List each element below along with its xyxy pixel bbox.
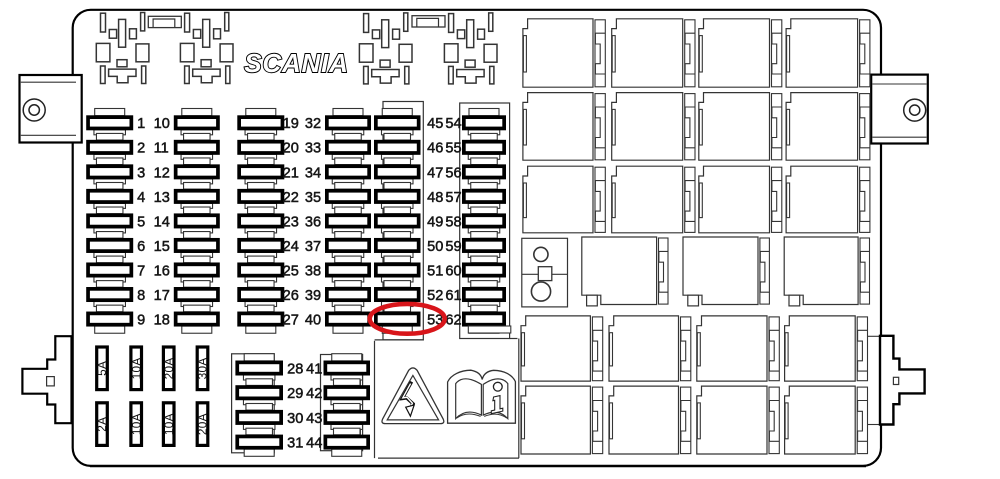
svg-text:27: 27: [283, 312, 299, 328]
svg-text:58: 58: [445, 214, 461, 230]
svg-text:51: 51: [427, 263, 443, 279]
svg-text:2A: 2A: [95, 417, 109, 432]
svg-text:17: 17: [154, 288, 170, 304]
svg-text:29: 29: [287, 386, 303, 402]
svg-text:21: 21: [283, 165, 299, 181]
svg-text:34: 34: [305, 165, 321, 181]
svg-text:3: 3: [137, 165, 145, 181]
svg-text:2: 2: [137, 141, 145, 157]
svg-text:24: 24: [283, 239, 299, 255]
svg-text:10: 10: [154, 116, 170, 132]
svg-text:54: 54: [445, 116, 461, 132]
svg-text:20: 20: [283, 141, 299, 157]
svg-text:30: 30: [287, 411, 303, 427]
svg-text:35: 35: [305, 190, 321, 206]
svg-text:20A: 20A: [196, 413, 210, 435]
svg-text:50: 50: [427, 239, 443, 255]
svg-text:42: 42: [306, 386, 322, 402]
svg-text:55: 55: [445, 141, 461, 157]
svg-text:13: 13: [154, 190, 170, 206]
svg-text:32: 32: [305, 116, 321, 132]
svg-text:14: 14: [154, 214, 170, 230]
svg-text:10A: 10A: [162, 413, 176, 435]
svg-text:44: 44: [306, 436, 322, 452]
svg-text:43: 43: [306, 411, 322, 427]
svg-text:10A: 10A: [129, 413, 143, 435]
svg-text:49: 49: [427, 214, 443, 230]
svg-text:8: 8: [137, 288, 145, 304]
svg-text:20A: 20A: [162, 357, 176, 379]
svg-text:31: 31: [287, 436, 303, 452]
svg-text:38: 38: [305, 263, 321, 279]
svg-text:30A: 30A: [196, 357, 210, 379]
svg-text:12: 12: [154, 165, 170, 181]
svg-text:57: 57: [445, 190, 461, 206]
svg-text:11: 11: [154, 141, 169, 157]
svg-text:SCANIA: SCANIA: [244, 48, 348, 78]
svg-text:56: 56: [445, 165, 461, 181]
svg-text:52: 52: [427, 288, 443, 304]
svg-text:4: 4: [137, 190, 145, 206]
svg-text:7: 7: [137, 263, 145, 279]
svg-text:19: 19: [283, 116, 299, 132]
svg-text:16: 16: [154, 263, 170, 279]
svg-text:33: 33: [305, 141, 321, 157]
svg-text:61: 61: [445, 288, 461, 304]
svg-text:15: 15: [154, 239, 170, 255]
svg-text:10A: 10A: [129, 357, 143, 379]
svg-text:26: 26: [283, 288, 299, 304]
svg-text:59: 59: [445, 239, 461, 255]
svg-text:5A: 5A: [95, 361, 109, 376]
svg-text:28: 28: [287, 361, 303, 377]
svg-text:22: 22: [283, 190, 299, 206]
svg-text:25: 25: [283, 263, 299, 279]
svg-text:18: 18: [154, 312, 170, 328]
svg-text:6: 6: [137, 239, 145, 255]
svg-text:36: 36: [305, 214, 321, 230]
svg-text:62: 62: [445, 312, 461, 328]
svg-text:5: 5: [137, 214, 145, 230]
svg-text:37: 37: [305, 239, 321, 255]
svg-text:41: 41: [306, 361, 322, 377]
svg-text:39: 39: [305, 288, 321, 304]
svg-text:1: 1: [137, 116, 145, 132]
svg-text:60: 60: [445, 263, 461, 279]
svg-text:48: 48: [427, 190, 443, 206]
svg-text:46: 46: [427, 141, 443, 157]
svg-text:47: 47: [427, 165, 443, 181]
svg-text:9: 9: [137, 312, 145, 328]
svg-text:40: 40: [305, 312, 321, 328]
svg-text:45: 45: [427, 116, 443, 132]
svg-text:23: 23: [283, 214, 299, 230]
